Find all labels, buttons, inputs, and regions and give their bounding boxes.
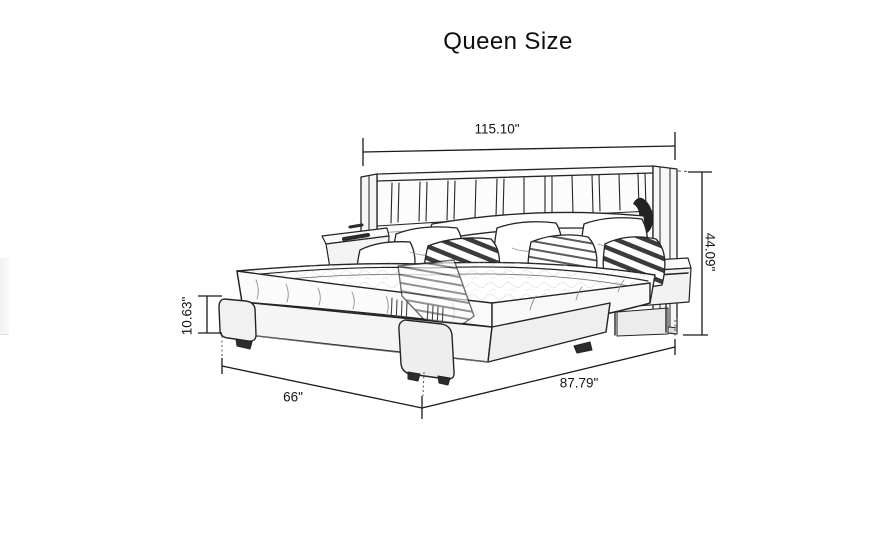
dimension-label-frame-depth: 87.79" <box>560 376 599 391</box>
dim-overall-width-line <box>363 132 675 166</box>
bed-sketch-drawing <box>0 0 889 533</box>
dimension-label-overall-height: 44.09" <box>703 233 718 272</box>
dimension-diagram-page: Queen Size <box>0 0 889 533</box>
dim-frame-width-line <box>222 358 422 408</box>
dimension-label-base-height: 10.63" <box>180 297 195 336</box>
dimension-label-frame-width: 66" <box>283 390 303 405</box>
dimension-label-overall-width: 115.10" <box>474 122 519 137</box>
